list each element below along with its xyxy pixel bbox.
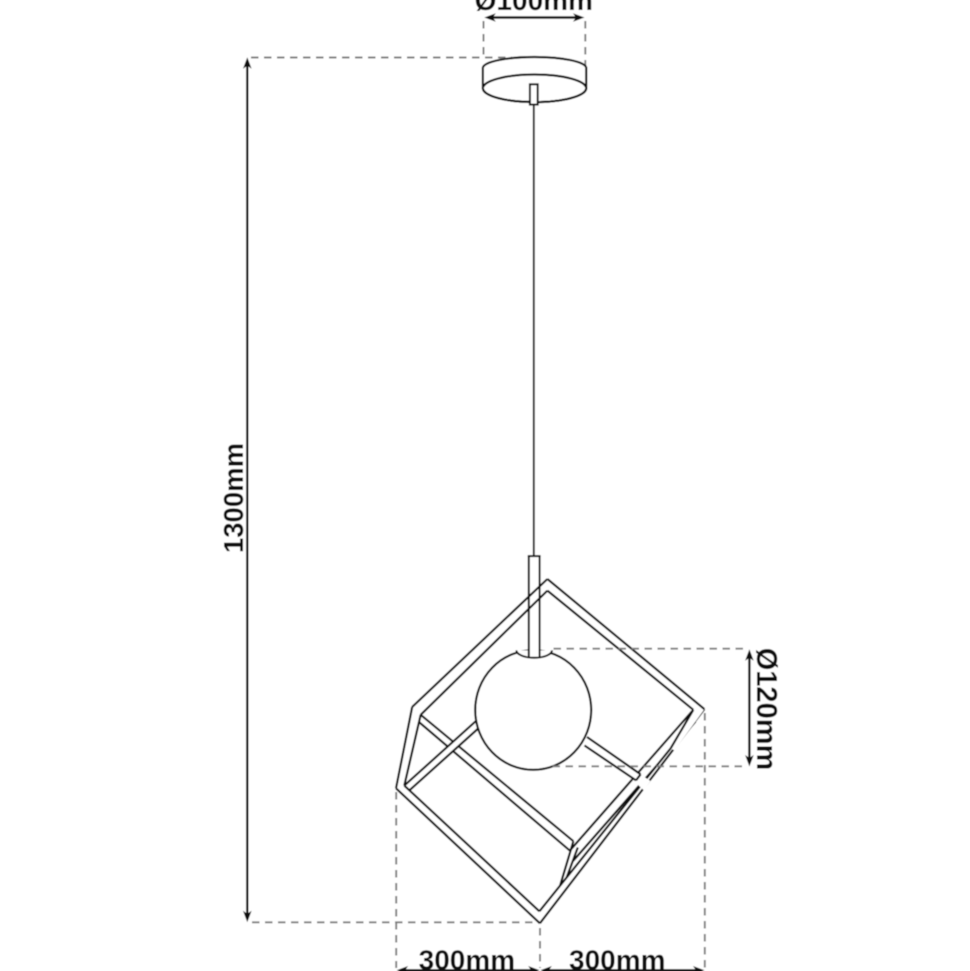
svg-text:Ø120mm: Ø120mm: [750, 648, 782, 771]
svg-text:300mm: 300mm: [569, 945, 666, 971]
svg-text:Ø100mm: Ø100mm: [475, 0, 593, 16]
svg-text:1300mm: 1300mm: [218, 443, 249, 553]
svg-text:300mm: 300mm: [419, 945, 516, 971]
